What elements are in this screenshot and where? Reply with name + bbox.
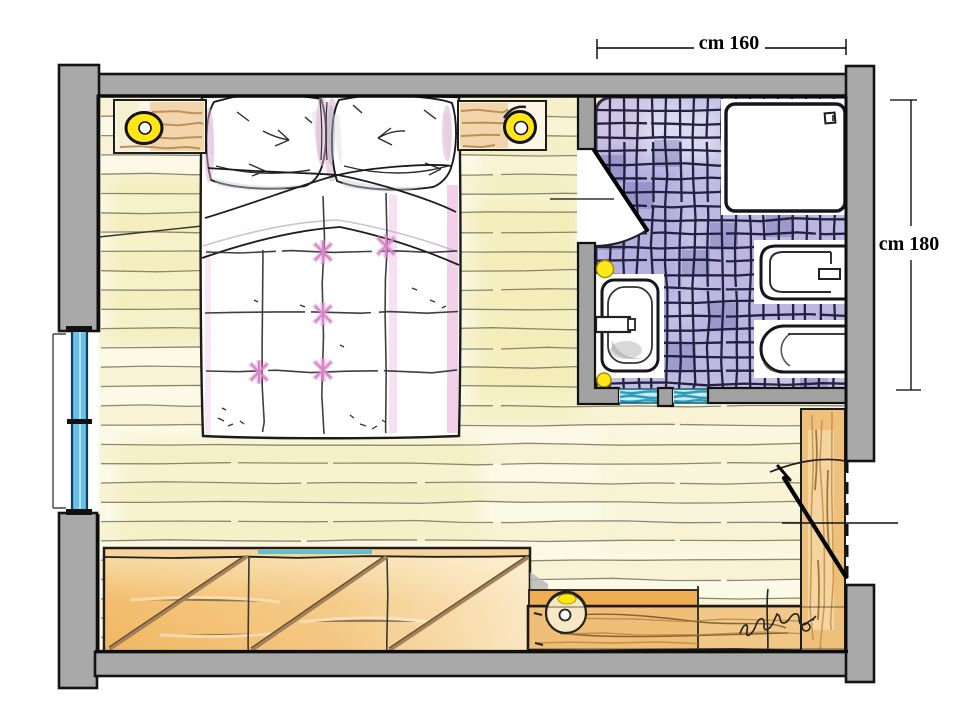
svg-text:cm 160: cm 160 <box>699 32 760 54</box>
svg-text:cm 180: cm 180 <box>879 233 940 255</box>
